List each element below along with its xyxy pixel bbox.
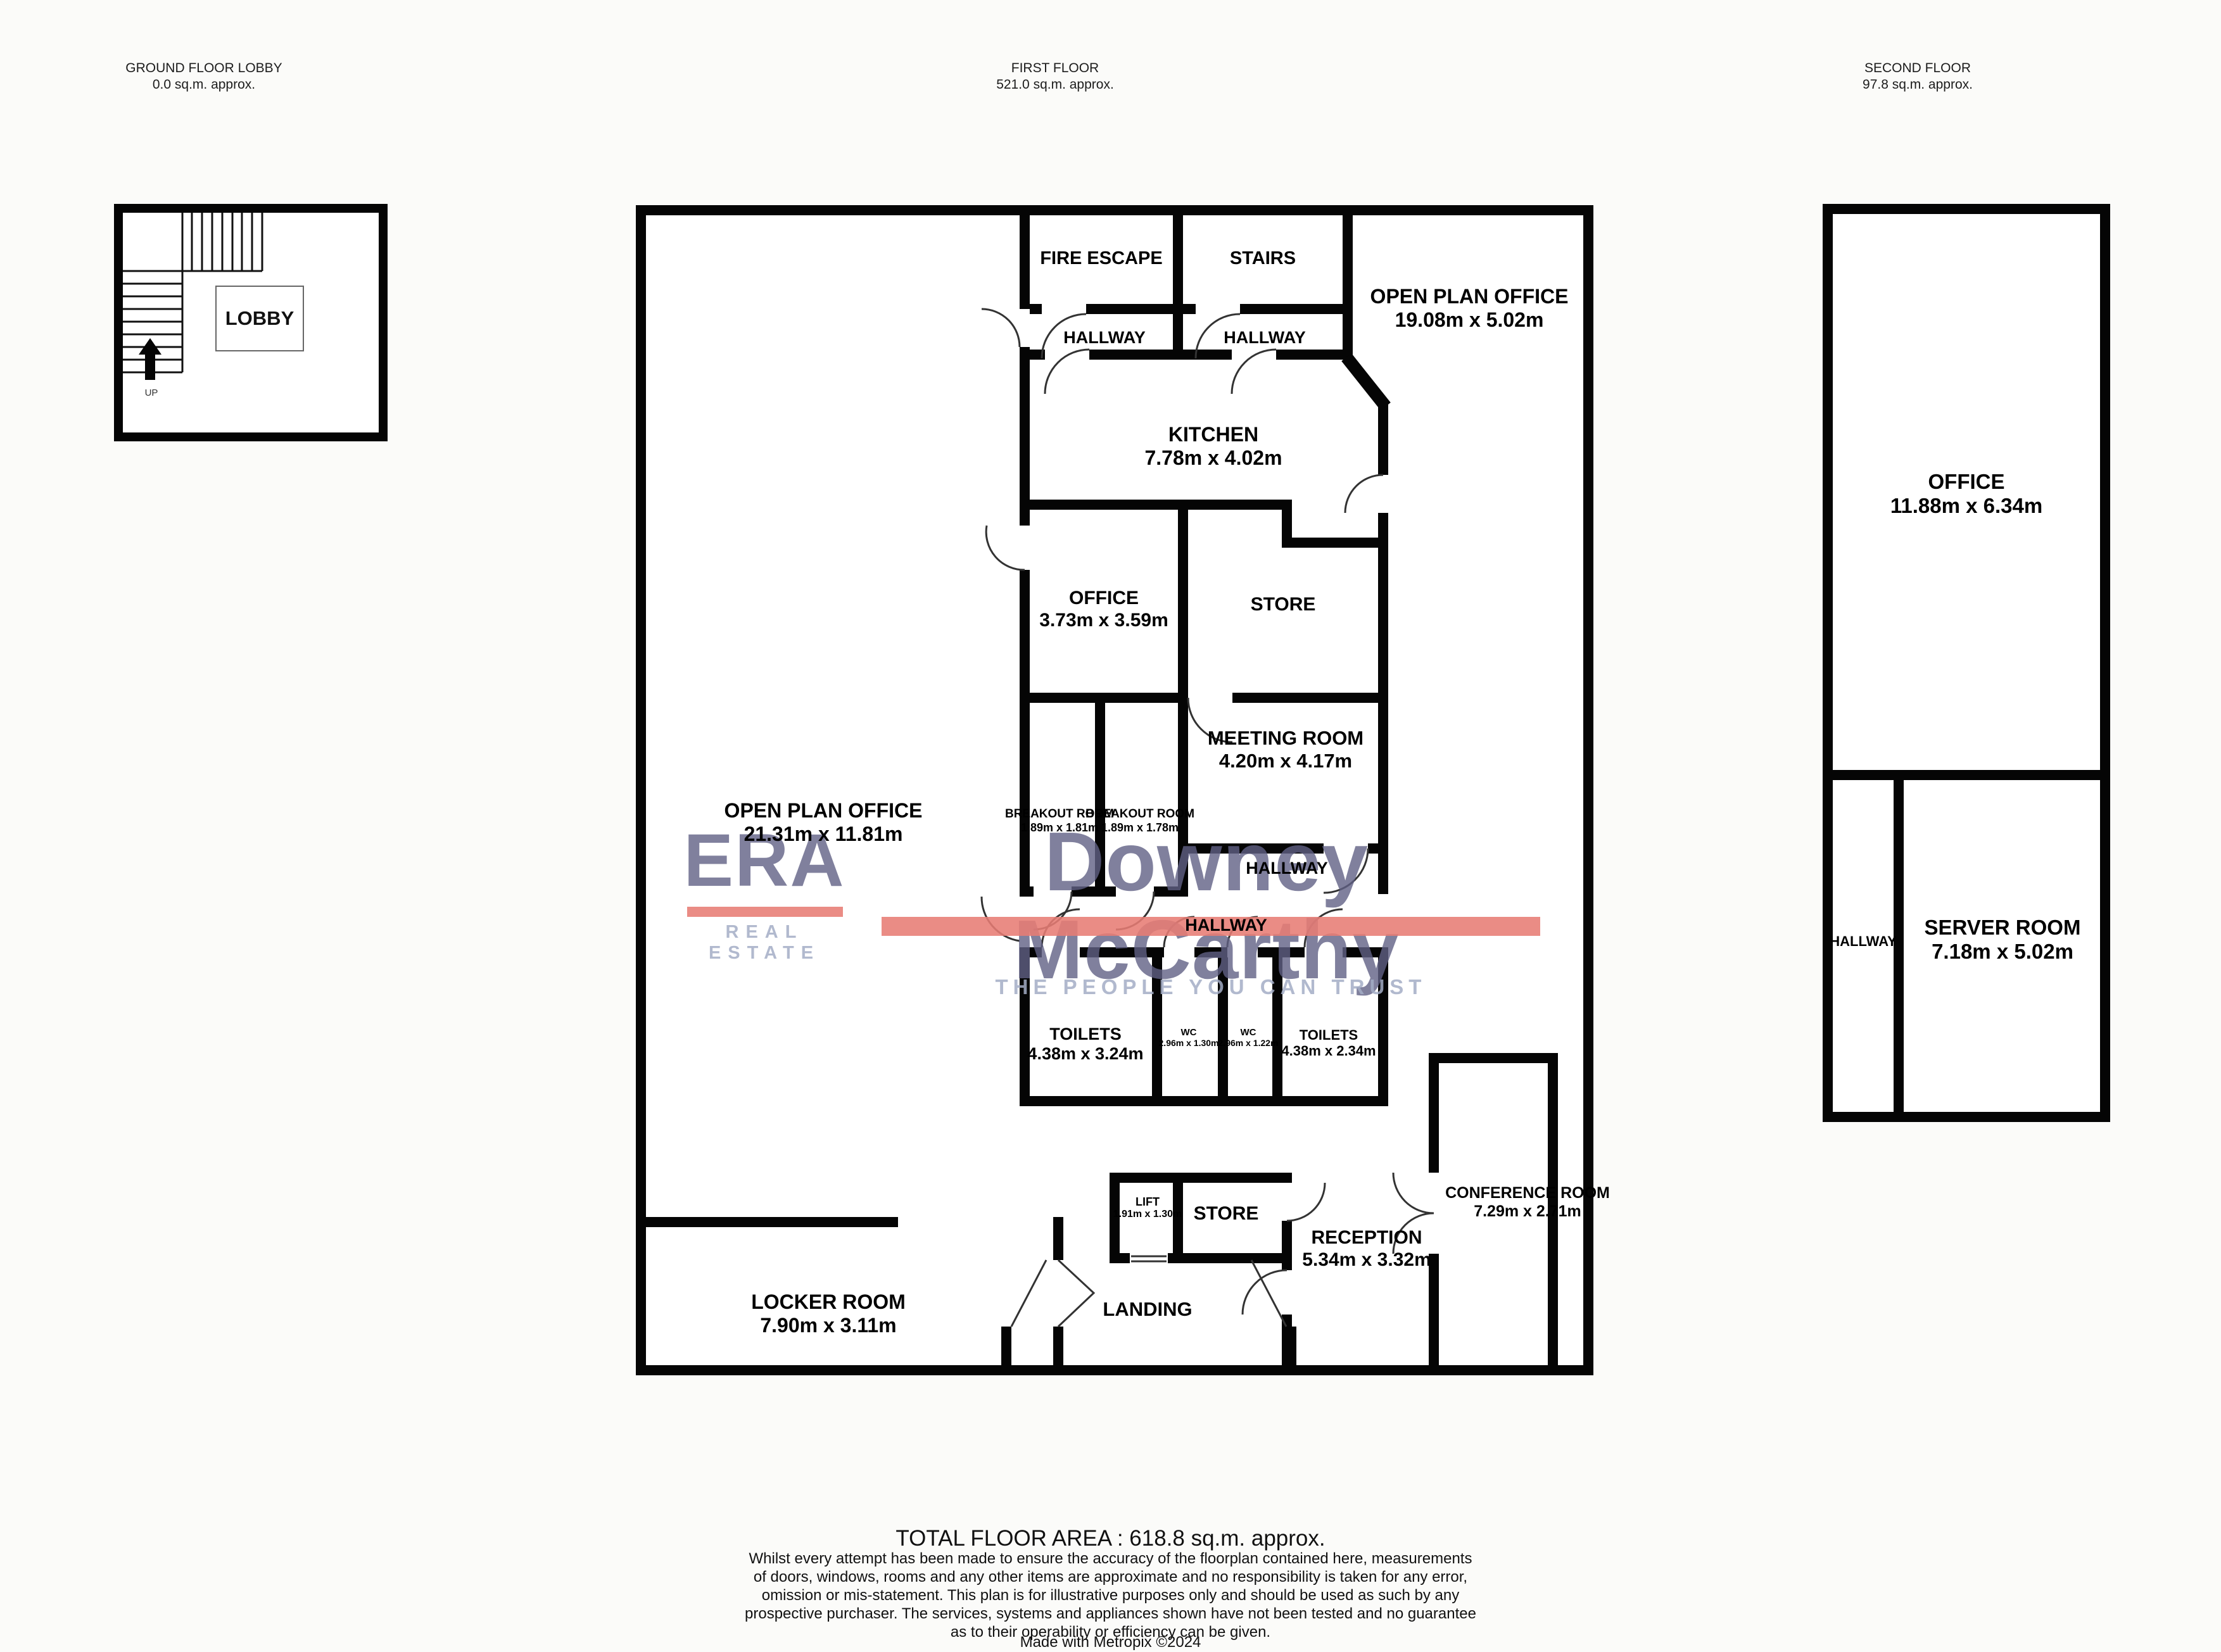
room-label-kitchen: KITCHEN 7.78m x 4.02m — [1144, 423, 1282, 470]
disclaimer-line: Whilst every attempt has been made to en… — [0, 1549, 2221, 1568]
lift-door — [1131, 1256, 1167, 1261]
room-label-hallway-top-right: HALLWAY — [1224, 328, 1306, 348]
room-label-wc-left: WC 2.96m x 1.30m — [1159, 1027, 1219, 1048]
room-label-locker: LOCKER ROOM 7.90m x 3.11m — [751, 1290, 906, 1337]
second-floor-area: 97.8 sq.m. approx. — [1785, 77, 2051, 93]
room-label-lobby: LOBBY — [215, 286, 304, 351]
room-label-toilets-left: TOILETS 4.38m x 3.24m — [1027, 1025, 1143, 1064]
room-label-server: SERVER ROOM 7.18m x 5.02m — [1925, 916, 2081, 964]
locker-door-leaves — [1058, 1260, 1094, 1327]
room-label-hallway-mid-right: HALLWAY — [1246, 859, 1328, 878]
room-label-wc-right: WC 2.96m x 1.22m — [1218, 1027, 1279, 1048]
agency-watermark: Downey McCarthy — [861, 818, 1552, 993]
room-label-store-lower: STORE — [1194, 1203, 1259, 1225]
room-label-open-plan-office-main: OPEN PLAN OFFICE 21.31m x 11.81m — [725, 799, 923, 846]
room-label-store-upper: STORE — [1251, 594, 1316, 616]
stairs-up-label: UP — [145, 388, 158, 398]
ground-floor-area: 0.0 sq.m. approx. — [71, 77, 337, 93]
first-floor-area: 521.0 sq.m. approx. — [922, 77, 1188, 93]
room-label-lift: LIFT 1.91m x 1.30m — [1113, 1195, 1182, 1220]
metropix-credit: Made with Metropix ©2024 — [0, 1634, 2221, 1651]
room-label-meeting: MEETING ROOM 4.20m x 4.17m — [1208, 727, 1364, 772]
ground-floor-header: GROUND FLOOR LOBBY 0.0 sq.m. approx. — [71, 60, 337, 94]
second-floor-title: SECOND FLOOR — [1785, 60, 2051, 77]
floorplan-page: GROUND FLOOR LOBBY 0.0 sq.m. approx. FIR… — [0, 0, 2221, 1652]
room-label-landing: LANDING — [1103, 1298, 1192, 1321]
wall-diagonal — [1346, 357, 1386, 407]
disclaimer-line: prospective purchaser. The services, sys… — [0, 1605, 2221, 1623]
room-label-reception: RECEPTION 5.34m x 3.32m — [1302, 1227, 1431, 1271]
total-floor-area: TOTAL FLOOR AREA : 618.8 sq.m. approx. — [0, 1526, 2221, 1551]
disclaimer: Whilst every attempt has been made to en… — [0, 1549, 2221, 1641]
first-floor-title: FIRST FLOOR — [922, 60, 1188, 77]
room-label-toilets-right: TOILETS 4.38m x 2.34m — [1281, 1027, 1376, 1059]
room-label-stairs: STAIRS — [1230, 248, 1296, 269]
lobby-name: LOBBY — [225, 307, 294, 330]
room-label-office: OFFICE 3.73m x 3.59m — [1039, 588, 1168, 631]
era-logo-underline — [687, 907, 843, 917]
room-label-conference: CONFERENCE ROOM 7.29m x 2.71m — [1445, 1184, 1610, 1221]
disclaimer-line: omission or mis-statement. This plan is … — [0, 1586, 2221, 1605]
room-label-hallway-mid-left: HALLWAY — [1185, 916, 1267, 935]
room-label-open-plan-office-top: OPEN PLAN OFFICE 19.08m x 5.02m — [1370, 285, 1569, 332]
ground-floor-title: GROUND FLOOR LOBBY — [71, 60, 337, 77]
era-logo-subtext: REAL ESTATE — [683, 922, 846, 964]
agency-tagline: THE PEOPLE YOU CAN TRUST — [882, 975, 1540, 999]
room-label-second-office: OFFICE 11.88m x 6.34m — [1890, 470, 2042, 518]
disclaimer-line: of doors, windows, rooms and any other i… — [0, 1568, 2221, 1586]
first-floor-header: FIRST FLOOR 521.0 sq.m. approx. — [922, 60, 1188, 94]
room-label-fire-escape: FIRE ESCAPE — [1040, 248, 1162, 269]
room-label-second-hallway: HALLWAY — [1830, 933, 1897, 949]
room-label-hallway-top-left: HALLWAY — [1063, 328, 1146, 348]
room-label-breakout-right: BREAKOUT ROOM 1.89m x 1.78m — [1085, 807, 1194, 835]
second-floor-header: SECOND FLOOR 97.8 sq.m. approx. — [1785, 60, 2051, 94]
